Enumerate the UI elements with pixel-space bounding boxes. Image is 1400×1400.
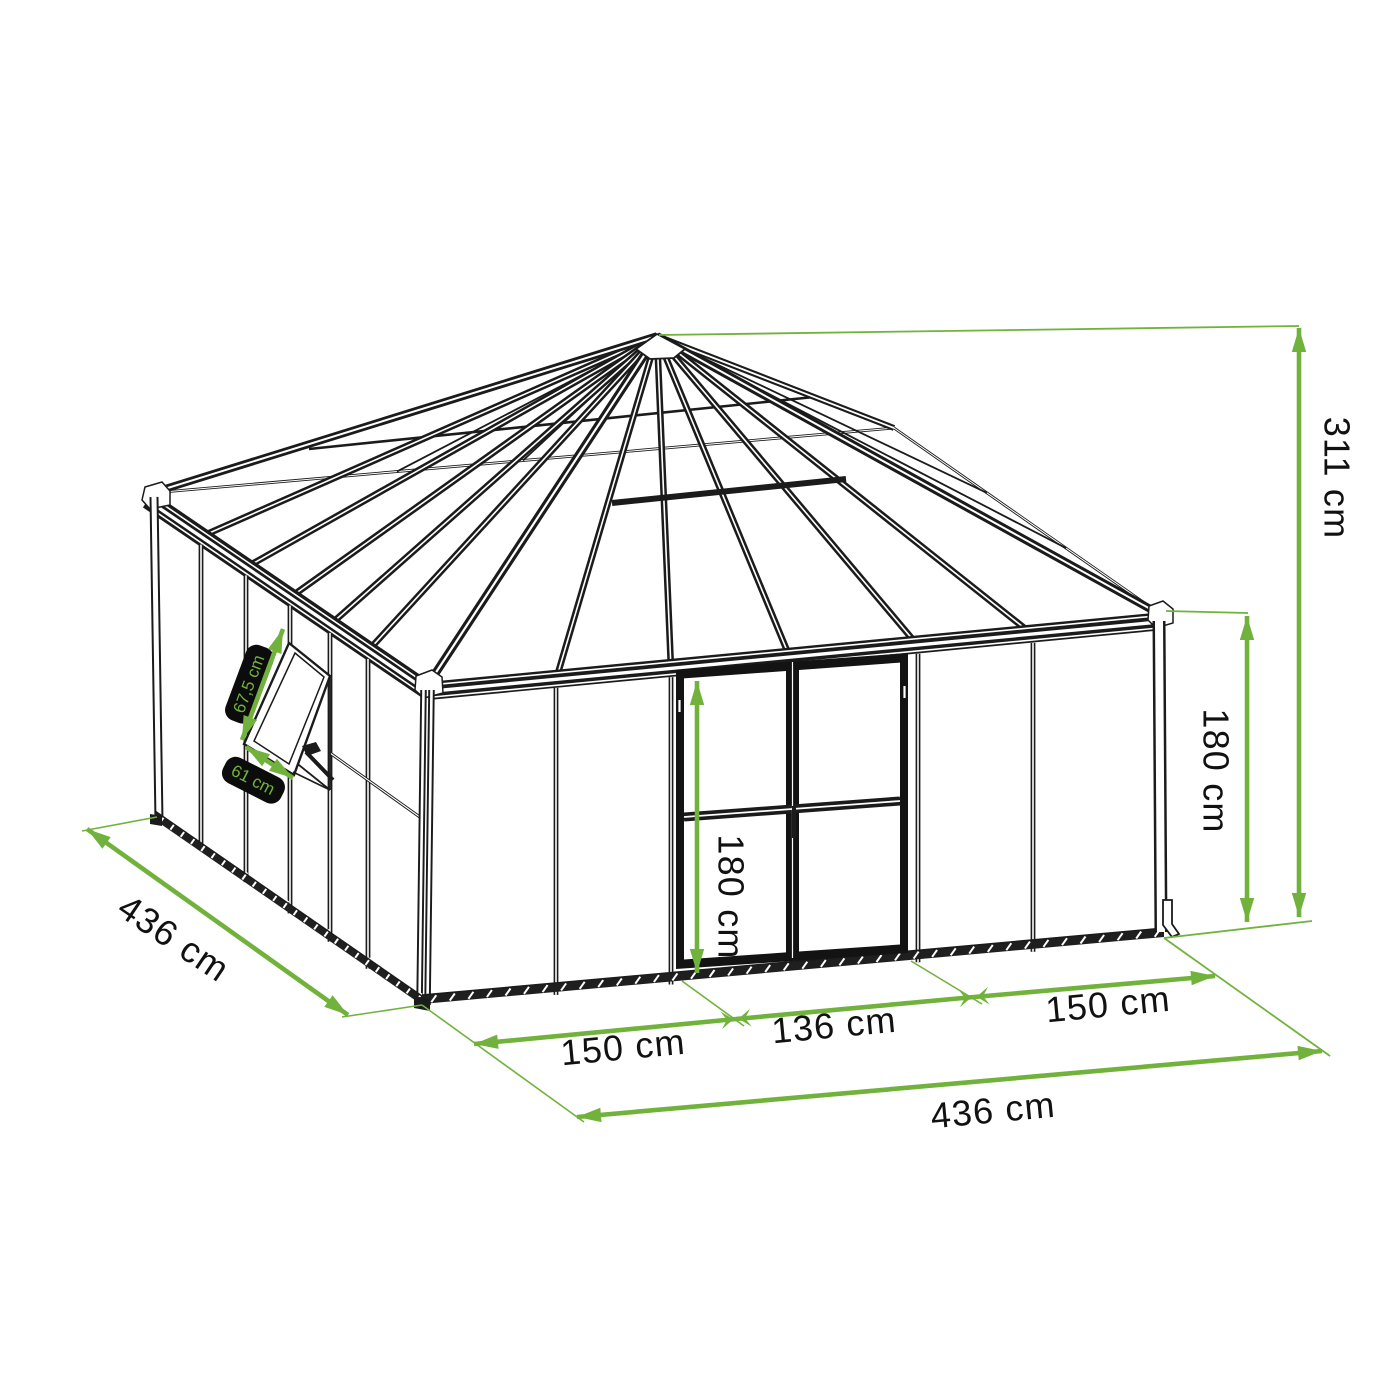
svg-text:311 cm: 311 cm xyxy=(1317,417,1358,540)
svg-text:180 cm: 180 cm xyxy=(711,834,752,959)
svg-text:180 cm: 180 cm xyxy=(1196,708,1237,833)
